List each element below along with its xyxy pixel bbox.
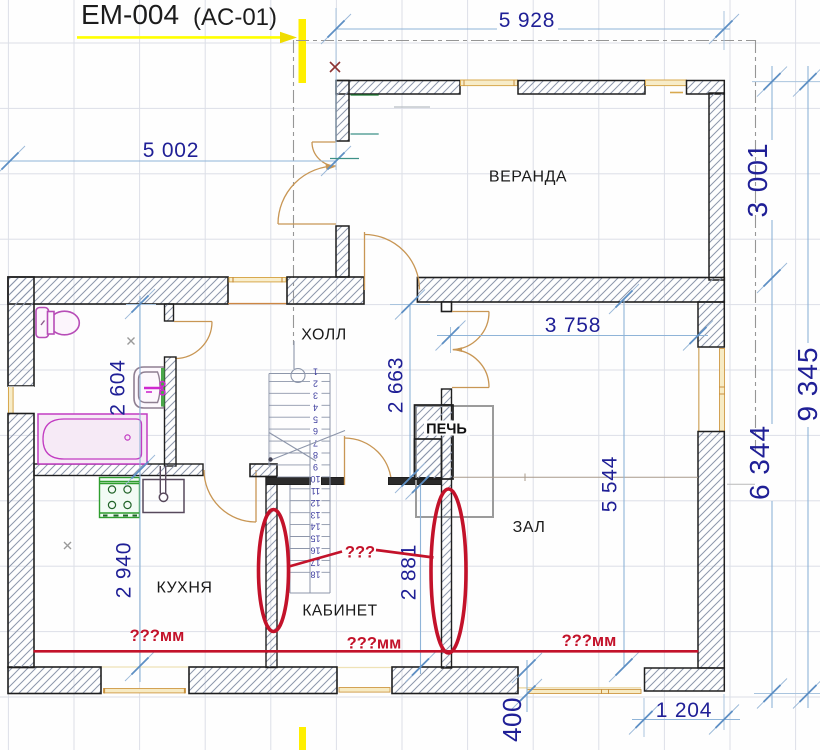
svg-text:1 204: 1 204	[656, 699, 713, 722]
svg-text:3: 3	[313, 390, 318, 400]
svg-text:(AC-01): (AC-01)	[193, 4, 277, 31]
svg-text:18: 18	[310, 569, 320, 579]
svg-text:5 928: 5 928	[499, 9, 556, 32]
svg-text:5 544: 5 544	[599, 456, 622, 513]
svg-text:15: 15	[310, 534, 320, 544]
svg-text:9 345: 9 345	[792, 346, 820, 421]
svg-text:EM-004: EM-004	[81, 0, 179, 30]
svg-text:14: 14	[310, 522, 320, 532]
svg-text:2 663: 2 663	[385, 357, 408, 414]
svg-text:12: 12	[310, 498, 320, 508]
svg-text:8: 8	[313, 450, 318, 460]
svg-text:9: 9	[313, 462, 318, 472]
svg-text:5: 5	[313, 414, 318, 424]
svg-text:???: ???	[345, 544, 375, 562]
svg-text:КУХНЯ: КУХНЯ	[157, 580, 213, 597]
svg-text:???мм: ???мм	[347, 635, 402, 653]
svg-text:КАБИНЕТ: КАБИНЕТ	[302, 603, 377, 620]
svg-text:6 344: 6 344	[744, 425, 775, 500]
svg-text:13: 13	[310, 510, 320, 520]
svg-text:ВЕРАНДА: ВЕРАНДА	[489, 169, 567, 186]
svg-text:???мм: ???мм	[130, 627, 185, 645]
svg-text:ПЕЧЬ: ПЕЧЬ	[426, 422, 467, 438]
svg-text:11: 11	[311, 486, 320, 496]
svg-text:2 604: 2 604	[107, 359, 130, 416]
svg-text:3 758: 3 758	[545, 314, 602, 337]
svg-text:10: 10	[310, 474, 320, 484]
svg-text:6: 6	[313, 426, 318, 436]
svg-text:2: 2	[313, 379, 318, 389]
svg-text:5 002: 5 002	[143, 139, 200, 162]
svg-text:ХОЛЛ: ХОЛЛ	[301, 327, 346, 344]
svg-text:???мм: ???мм	[562, 632, 617, 650]
svg-text:400: 400	[497, 697, 527, 742]
svg-text:ЗАЛ: ЗАЛ	[513, 519, 546, 536]
svg-text:16: 16	[310, 546, 320, 556]
svg-text:4: 4	[313, 402, 318, 412]
svg-text:1: 1	[313, 367, 318, 377]
svg-text:2 940: 2 940	[113, 542, 136, 599]
svg-text:3 001: 3 001	[742, 142, 773, 217]
